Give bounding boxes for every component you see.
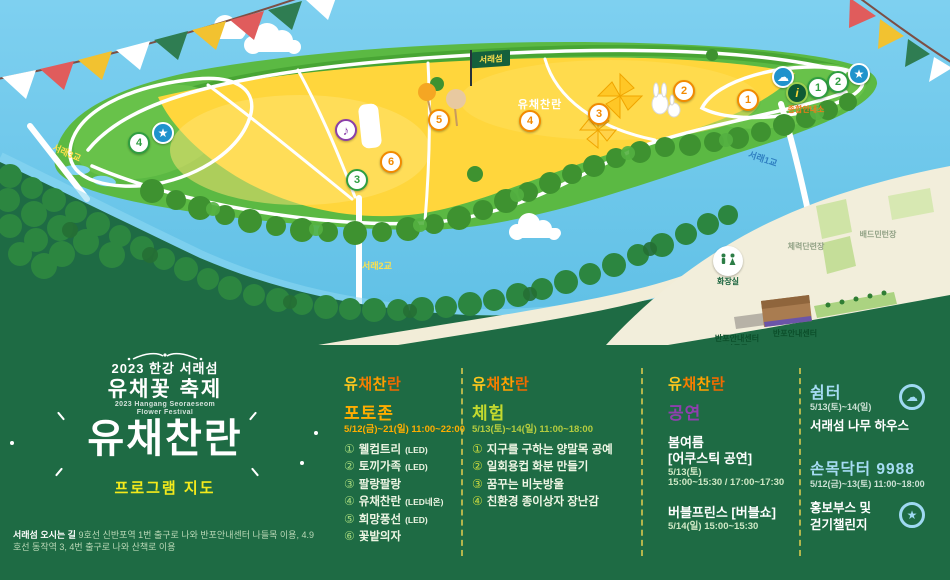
map-marker-photo-4: 4	[519, 110, 541, 132]
logo-deco-dot	[314, 431, 318, 435]
festival-title: 유채꽃 축제	[2, 379, 328, 401]
column-logo: 유채찬란	[668, 373, 725, 394]
column-logo: 유채찬란	[344, 373, 401, 394]
directions-text: 서래섬 오시는 길 9호선 신반포역 1번 출구로 나와 반포안내센터 나들목 …	[13, 530, 321, 553]
map-marker-photo-5: 5	[428, 109, 450, 131]
map-marker-photo-1: 1	[737, 89, 759, 111]
list-item: ⑤희망풍선(LED)	[344, 511, 443, 528]
program-map-title: 프로그램 지도	[2, 477, 328, 498]
experience-column: 유채찬란 체험 5/13(토)~14(일) 11:00~18:00 ①지구를 구…	[472, 345, 634, 580]
map-marker-exp-2: 2	[827, 71, 849, 93]
event2-time: 5/14(일) 15:00~15:30	[668, 518, 758, 532]
site-map: 서래섬 유채찬란 서래1교 서래2교 서래3교 체력단련장 배드민턴장 반포안내…	[0, 0, 950, 345]
list-item: ③팔랑팔랑	[344, 476, 443, 493]
info-column: 쉼터 5/13(토)~14(일) 서래섬 나무 하우스 ☁ 손목닥터 9988 …	[810, 345, 950, 580]
festival-year-line: 2023 한강 서래섬	[2, 362, 328, 376]
festival-logo: 유채찬란	[2, 417, 328, 461]
list-item: ⑥꽃밭의자	[344, 528, 443, 545]
bridge1-label: 서래1교	[747, 147, 779, 169]
field-logo-text: 유채찬란	[508, 96, 572, 112]
music-stage-icon: ♪	[335, 119, 357, 141]
experience-date: 5/13(토)~14(일) 11:00~18:00	[472, 421, 593, 435]
logo-deco-dot	[10, 441, 14, 445]
star-marker-east-icon: ★	[848, 63, 870, 85]
photo-zone-date: 5/12(금)~21(일) 11:00~22:00	[344, 421, 465, 435]
restroom-label: 화장실	[708, 276, 748, 287]
list-item: ②토끼가족(LED)	[344, 458, 443, 475]
festival-poster: 서래섬 유채찬란 서래1교 서래2교 서래3교 체력단련장 배드민턴장 반포안내…	[0, 0, 950, 580]
column-divider	[461, 368, 463, 556]
logo-deco-tick	[251, 468, 259, 477]
bridge2-label: 서래2교	[362, 259, 392, 272]
banpo-center-label: 반포안내센터	[763, 329, 827, 339]
column-logo: 유채찬란	[472, 373, 529, 394]
photo-zone-column: 유채찬란 포토존 5/12(금)~21(일) 11:00~22:00 ①웰컴트리…	[344, 345, 460, 580]
restroom-icon	[713, 246, 743, 276]
experience-list: ①지구를 구하는 양말목 공예 ②일회용컵 화분 만들기 ③꿈꾸는 비눗방울 ④…	[472, 441, 613, 511]
wrist-doctor-desc2: 걷기챌린지	[810, 514, 868, 533]
column-divider	[641, 368, 643, 556]
map-marker-photo-2: 2	[673, 80, 695, 102]
wrist-doctor-date: 5/12(금)~13(토) 11:00~18:00	[810, 477, 925, 490]
performance-column: 유채찬란 공연 봄여름 [어쿠스틱 공연] 5/13(토) 15:00~15:3…	[656, 345, 792, 580]
logo-deco-tick	[55, 468, 63, 477]
info-center-label: 종합안내소	[777, 104, 835, 115]
shelter-date: 5/13(토)~14(일)	[810, 400, 871, 413]
fitness-area-label: 체력단련장	[776, 241, 836, 252]
bridge3-label: 서래3교	[51, 140, 84, 164]
shelter-desc: 서래섬 나무 하우스	[810, 415, 909, 434]
laurel-ornament	[115, 351, 215, 361]
event1-date: 5/13(토)	[668, 464, 702, 478]
festival-subtitle-en2: Flower Festival	[2, 409, 328, 417]
directions-label: 서래섬 오시는 길	[13, 530, 76, 540]
logo-deco-dot	[300, 461, 304, 465]
star-marker-west-icon: ★	[152, 122, 174, 144]
list-item: ④유채찬란(LED네온)	[344, 493, 443, 510]
badminton-label: 배드민턴장	[848, 229, 908, 240]
list-item: ④친환경 종이상자 장난감	[472, 493, 613, 510]
column-divider	[799, 368, 801, 556]
list-item: ①웰컴트리(LED)	[344, 441, 443, 458]
map-marker-exp-1: 1	[807, 77, 829, 99]
cloud-icon: ☁	[899, 384, 925, 410]
brand-block: 2023 한강 서래섬 유채꽃 축제 2023 Hangang Seoraese…	[2, 351, 328, 498]
event1-time: 15:00~15:30 / 17:00~17:30	[668, 477, 784, 488]
flag-label: 서래섬	[472, 50, 510, 69]
wrist-doctor-title: 손목닥터 9988	[810, 457, 915, 479]
list-item: ①지구를 구하는 양말목 공예	[472, 441, 613, 458]
photo-zone-list: ①웰컴트리(LED) ②토끼가족(LED) ③팔랑팔랑 ④유채찬란(LED네온)…	[344, 441, 443, 545]
festival-subtitle-en1: 2023 Hangang Seoraeseom	[2, 401, 328, 409]
map-marker-photo-3: 3	[588, 103, 610, 125]
map-marker-exp-4: 4	[128, 132, 150, 154]
map-marker-exp-3: 3	[346, 169, 368, 191]
list-item: ②일회용컵 화분 만들기	[472, 458, 613, 475]
map-marker-photo-6: 6	[380, 151, 402, 173]
performance-title: 공연	[668, 399, 701, 424]
star-icon: ★	[899, 502, 925, 528]
program-panel: 2023 한강 서래섬 유채꽃 축제 2023 Hangang Seoraese…	[0, 345, 950, 580]
map-overlay: 서래섬 유채찬란 서래1교 서래2교 서래3교 체력단련장 배드민턴장 반포안내…	[0, 0, 950, 345]
info-center-icon: i	[786, 82, 808, 104]
list-item: ③꿈꾸는 비눗방울	[472, 476, 613, 493]
